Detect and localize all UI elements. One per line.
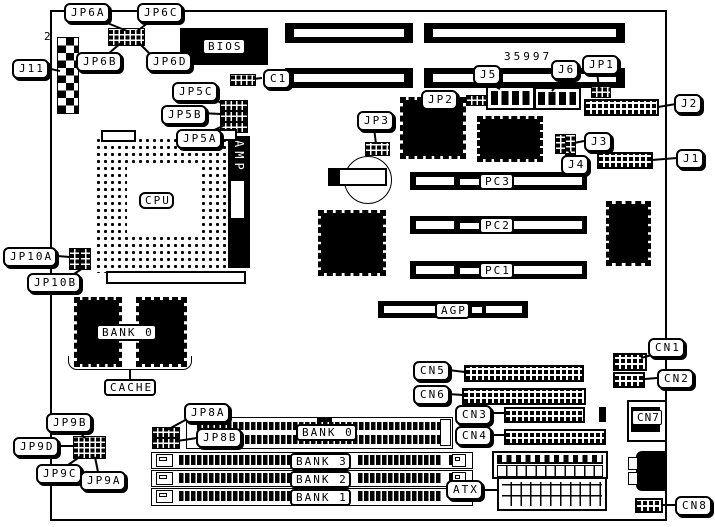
- callout-jp9d: JP9D: [13, 437, 59, 457]
- callout-cn5: CN5: [413, 361, 450, 381]
- callout-cn4: CN4: [455, 426, 492, 446]
- callout-jp8b: JP8B: [196, 428, 242, 448]
- callout-c1: C1: [263, 69, 291, 89]
- callout-atx: ATX: [446, 480, 483, 500]
- callout-j5: J5: [473, 65, 501, 85]
- motherboard-diagram: 35997 2 BIOS CPU AMP BANK 0 CACHE: [0, 0, 715, 527]
- callout-jp6c: JP6C: [137, 3, 183, 23]
- callout-cn1: CN1: [648, 338, 685, 358]
- callout-jp2: JP2: [421, 90, 458, 110]
- callout-jp1: JP1: [582, 55, 619, 75]
- callout-jp9a: JP9A: [80, 471, 126, 491]
- callout-j1: J1: [676, 149, 704, 169]
- callout-j4: J4: [561, 155, 589, 175]
- callout-j3: J3: [584, 132, 612, 152]
- pci1-label: PC1: [479, 262, 514, 279]
- callout-jp8a: JP8A: [184, 403, 230, 423]
- cache-bank-label: BANK 0: [96, 324, 157, 341]
- cpu-label: CPU: [139, 192, 174, 209]
- callout-jp6a: JP6A: [64, 3, 110, 23]
- bios-label: BIOS: [202, 38, 246, 55]
- callout-jp10b: JP10B: [27, 273, 81, 293]
- callout-jp10a: JP10A: [3, 247, 57, 267]
- callout-jp3: JP3: [357, 111, 394, 131]
- agp-label: AGP: [435, 302, 470, 319]
- callout-jp6b: JP6B: [76, 52, 122, 72]
- dimm-bank0-label: BANK 0: [296, 424, 357, 441]
- callout-jp5a: JP5A: [176, 129, 222, 149]
- callout-jp9b: JP9B: [46, 413, 92, 433]
- callout-jp5c: JP5C: [172, 82, 218, 102]
- callout-j6: J6: [551, 60, 579, 80]
- cache-label: CACHE: [104, 379, 156, 396]
- callout-jp5b: JP5B: [161, 105, 207, 125]
- simm-bank1-label: BANK 1: [290, 489, 351, 506]
- callout-cn2: CN2: [657, 369, 694, 389]
- callout-j2: J2: [674, 94, 702, 114]
- callout-j11: J11: [12, 59, 49, 79]
- pci3-label: PC3: [479, 173, 514, 190]
- simm-bank2-label: BANK 2: [290, 471, 351, 488]
- cn7-label: CN7: [632, 410, 662, 425]
- callout-cn3: CN3: [455, 405, 492, 425]
- pci2-label: PC2: [479, 217, 514, 234]
- simm-bank3-label: BANK 3: [290, 453, 351, 470]
- leader-lines: [0, 0, 715, 527]
- callout-cn6: CN6: [413, 385, 450, 405]
- callout-jp9c: JP9C: [36, 464, 82, 484]
- callout-jp6d: JP6D: [146, 52, 192, 72]
- callout-cn8: CN8: [675, 496, 712, 516]
